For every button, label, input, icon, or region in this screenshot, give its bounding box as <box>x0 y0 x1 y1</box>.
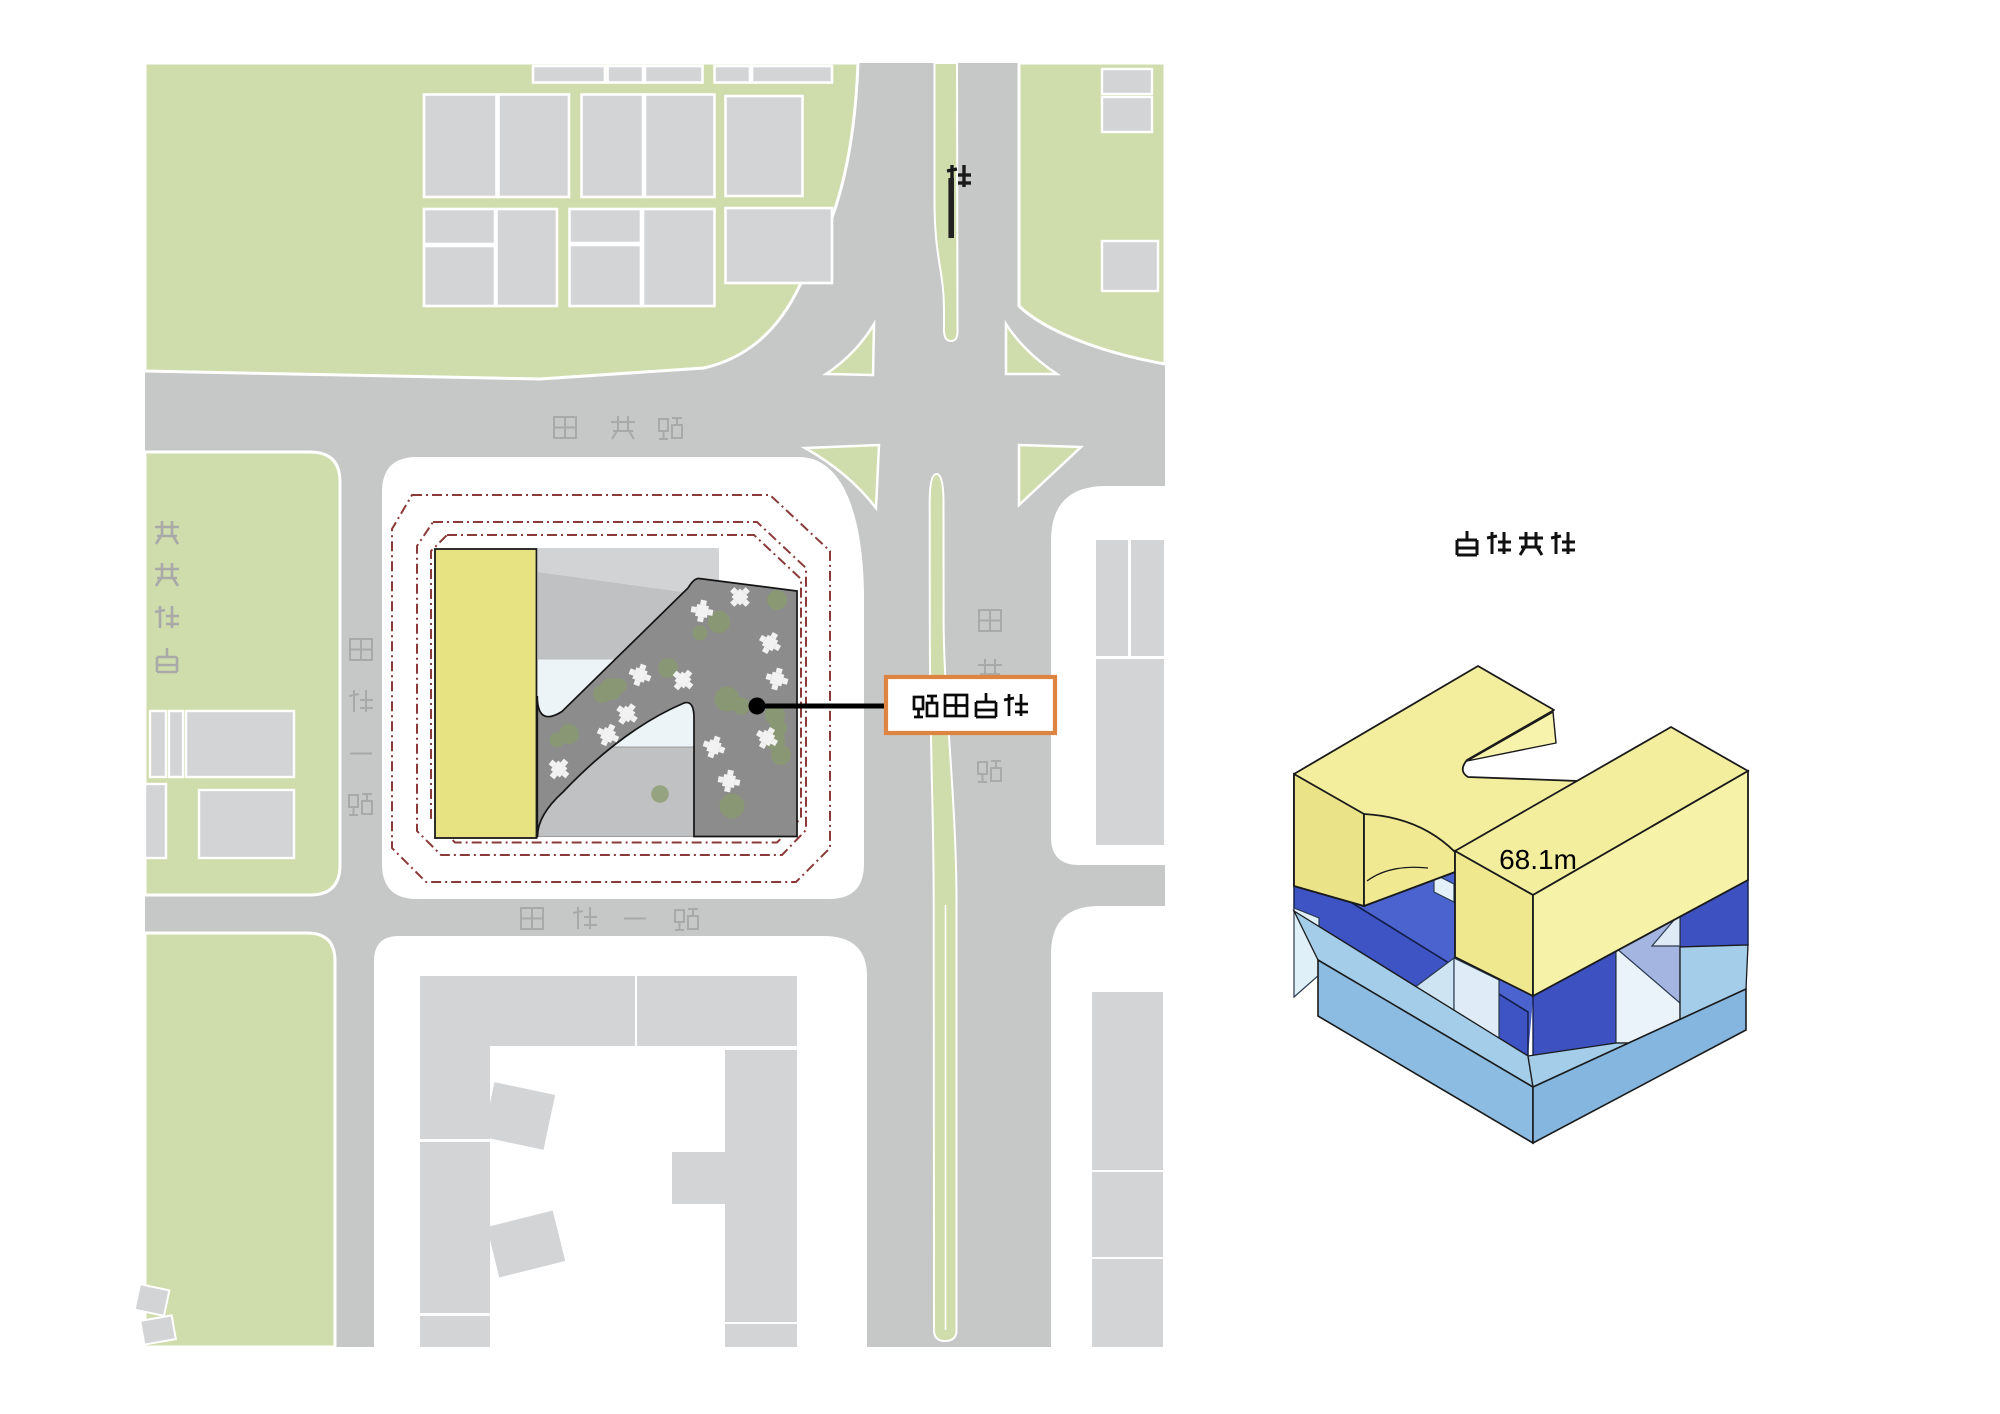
svg-text:68.1m: 68.1m <box>1499 844 1577 875</box>
